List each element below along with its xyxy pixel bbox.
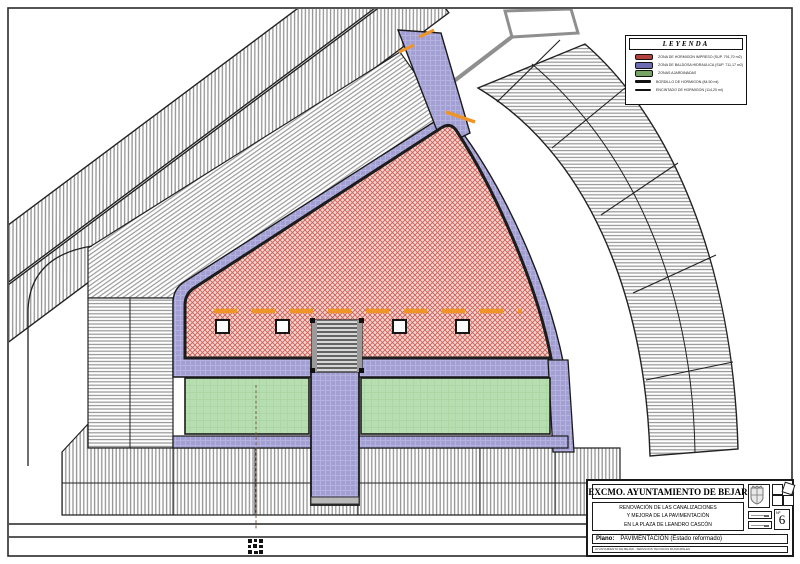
title-block-footer: AYUNTAMIENTO DE BEJAR - SERVICIOS TECNIC… — [592, 546, 788, 553]
legend-swatch-red — [635, 54, 653, 61]
city-crest-icon — [748, 484, 770, 508]
date-box — [748, 521, 772, 529]
legend-item: ZONA DE BALDOSA HIDRAULICA (SUP. 711,17 … — [626, 61, 746, 69]
plan-name: PAVIMENTACIÓN (Estado reformado) — [620, 536, 722, 542]
stamp-box-tilted — [782, 482, 796, 496]
staircase — [310, 318, 364, 373]
legend-title: LEYENDA — [629, 38, 743, 50]
title-block: EXCMO. AYUNTAMIENTO DE BEJAR RENOVACIÓN … — [586, 479, 794, 557]
building-block-west — [88, 298, 173, 448]
legend-box: LEYENDA ZONA DE HORMIGON IMPRESO (SUP. 7… — [625, 35, 747, 105]
garden-east — [361, 378, 550, 434]
plan-sheet: LEYENDA ZONA DE HORMIGON IMPRESO (SUP. 7… — [0, 0, 800, 564]
legend-item: ZONA DE HORMIGON IMPRESO (SUP. 791,70 m2… — [626, 53, 746, 61]
sheet-number: 6 — [775, 512, 789, 528]
project-title: RENOVACIÓN DE LAS CANALIZACIONES Y MEJOR… — [592, 502, 744, 531]
organization-name: EXCMO. AYUNTAMIENTO DE BEJAR — [592, 484, 744, 499]
central-walkway — [311, 358, 359, 505]
legend-item: ENCINTADO DE HORMIGON (114,20 ml) — [626, 86, 746, 94]
paving-band-south — [173, 436, 568, 448]
stamp-box — [783, 495, 794, 506]
legend-swatch-blue — [635, 62, 653, 69]
garden-west — [185, 378, 309, 434]
legend-item: ZONAS AJARDINADAS — [626, 69, 746, 77]
plan-name-row: Plano: PAVIMENTACIÓN (Estado reformado) — [592, 534, 788, 544]
legend-swatch-green — [635, 70, 653, 77]
legend-item: BORDILLO DE HORMIGON (84,50 ml) — [626, 78, 746, 86]
legend-line-swatch — [635, 89, 651, 92]
scale-box — [748, 511, 772, 519]
legend-line-swatch — [635, 80, 651, 83]
sheet-number-box: Nº 6 — [774, 509, 790, 530]
stamp-box — [772, 495, 783, 506]
qr-code — [248, 539, 263, 554]
plan-label: Plano: — [596, 536, 614, 542]
